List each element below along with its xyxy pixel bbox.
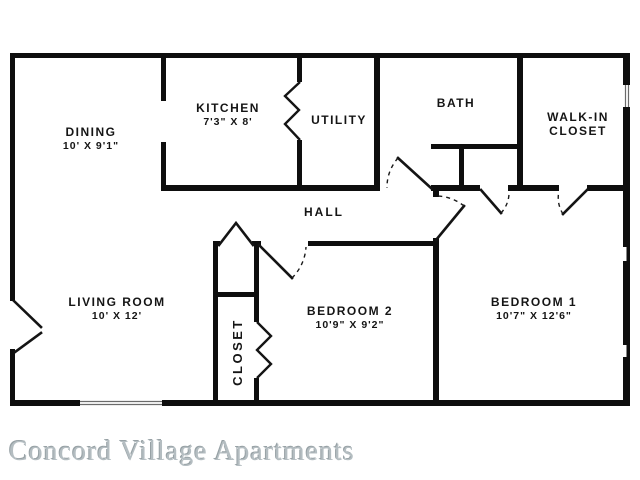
bedroom2-door-arc bbox=[292, 247, 306, 278]
floor-plan-image: DINING 10' X 9'1" KITCHEN 7'3" X 8' UTIL… bbox=[0, 0, 640, 480]
wall-hall-top-b bbox=[508, 185, 559, 191]
bath-door bbox=[398, 158, 431, 188]
room-label-hall: HALL bbox=[304, 206, 344, 220]
walkin-closet-door-arc bbox=[558, 191, 563, 214]
wall-kitchen-utility-lower bbox=[297, 140, 302, 190]
room-dimensions: 10'7" X 12'6" bbox=[491, 310, 577, 322]
room-label-utility: UTILITY bbox=[311, 114, 367, 128]
wall-bath-inner-vertical bbox=[459, 144, 464, 190]
window-right-mid bbox=[623, 247, 627, 261]
wall-dining-kitchen-lower bbox=[161, 142, 166, 190]
room-name: BEDROOM 2 bbox=[307, 305, 393, 319]
room-label-living-room: LIVING ROOM 10' X 12' bbox=[68, 296, 165, 322]
outer-walls bbox=[10, 53, 630, 406]
room-label-walk-in-closet: WALK-IN CLOSET bbox=[547, 111, 609, 139]
wall-top bbox=[10, 53, 630, 58]
walkin-closet-door bbox=[563, 190, 587, 214]
wall-kitchen-utility-upper bbox=[297, 58, 302, 82]
wall-hall-top-c bbox=[587, 185, 630, 191]
bedroom1-door bbox=[436, 206, 464, 240]
window-right-lower bbox=[623, 345, 627, 357]
bedroom2-door bbox=[259, 245, 292, 278]
room-name: BATH bbox=[437, 97, 475, 111]
wall-kitchen-bottom bbox=[161, 185, 380, 191]
wall-closet-right-lower bbox=[254, 378, 259, 406]
room-name: KITCHEN bbox=[196, 102, 260, 116]
entry-door bbox=[15, 333, 41, 352]
room-name-line2: CLOSET bbox=[547, 125, 609, 139]
wall-bath-inner-horizontal bbox=[431, 144, 523, 149]
room-dimensions: 10' X 9'1" bbox=[63, 140, 119, 152]
caption-text: Concord Village Apartments bbox=[9, 436, 355, 468]
wall-bedroom1-left bbox=[433, 238, 439, 406]
room-label-bath: BATH bbox=[437, 97, 475, 111]
wall-dining-kitchen-upper bbox=[161, 58, 166, 101]
utility-bifold-door bbox=[285, 82, 300, 140]
room-name-line1: WALK-IN bbox=[547, 111, 609, 125]
wall-left-lower bbox=[10, 349, 15, 406]
wall-closet-left bbox=[213, 241, 218, 406]
room-name: DINING bbox=[63, 126, 119, 140]
room-label-bedroom1: BEDROOM 1 10'7" X 12'6" bbox=[491, 296, 577, 322]
room-label-closet: CLOSET bbox=[227, 306, 247, 398]
window-bottom bbox=[80, 399, 162, 407]
room-name: HALL bbox=[304, 206, 344, 220]
wall-bath-walkin bbox=[517, 58, 523, 191]
vestibule-double-door bbox=[219, 223, 253, 245]
wall-bedroom1-left-stub bbox=[433, 185, 439, 197]
bedroom1-door-arc bbox=[436, 196, 464, 206]
room-label-bedroom2: BEDROOM 2 10'9" X 9'2" bbox=[307, 305, 393, 331]
bath-door-arc bbox=[387, 158, 398, 188]
closet-bifold-door bbox=[257, 322, 271, 378]
room-name: BEDROOM 1 bbox=[491, 296, 577, 310]
room-dimensions: 10'9" X 9'2" bbox=[307, 319, 393, 331]
bath-compartment-door bbox=[481, 190, 501, 213]
room-name: LIVING ROOM bbox=[68, 296, 165, 310]
room-label-dining: DINING 10' X 9'1" bbox=[63, 126, 119, 152]
room-label-kitchen: KITCHEN 7'3" X 8' bbox=[196, 102, 260, 128]
bath-compartment-door-arc bbox=[501, 191, 509, 213]
room-dimensions: 7'3" X 8' bbox=[196, 116, 260, 128]
wall-closet-right-upper bbox=[254, 246, 259, 322]
room-dimensions: 10' X 12' bbox=[68, 310, 165, 322]
entry-door bbox=[14, 301, 41, 327]
wall-closet-divider bbox=[213, 292, 259, 297]
wall-bedroom2-top bbox=[308, 241, 439, 246]
floor-plan-drawing bbox=[0, 0, 640, 480]
wall-left-upper bbox=[10, 53, 15, 301]
room-name: UTILITY bbox=[311, 114, 367, 128]
wall-utility-right bbox=[374, 58, 380, 191]
room-name: CLOSET bbox=[230, 318, 245, 386]
